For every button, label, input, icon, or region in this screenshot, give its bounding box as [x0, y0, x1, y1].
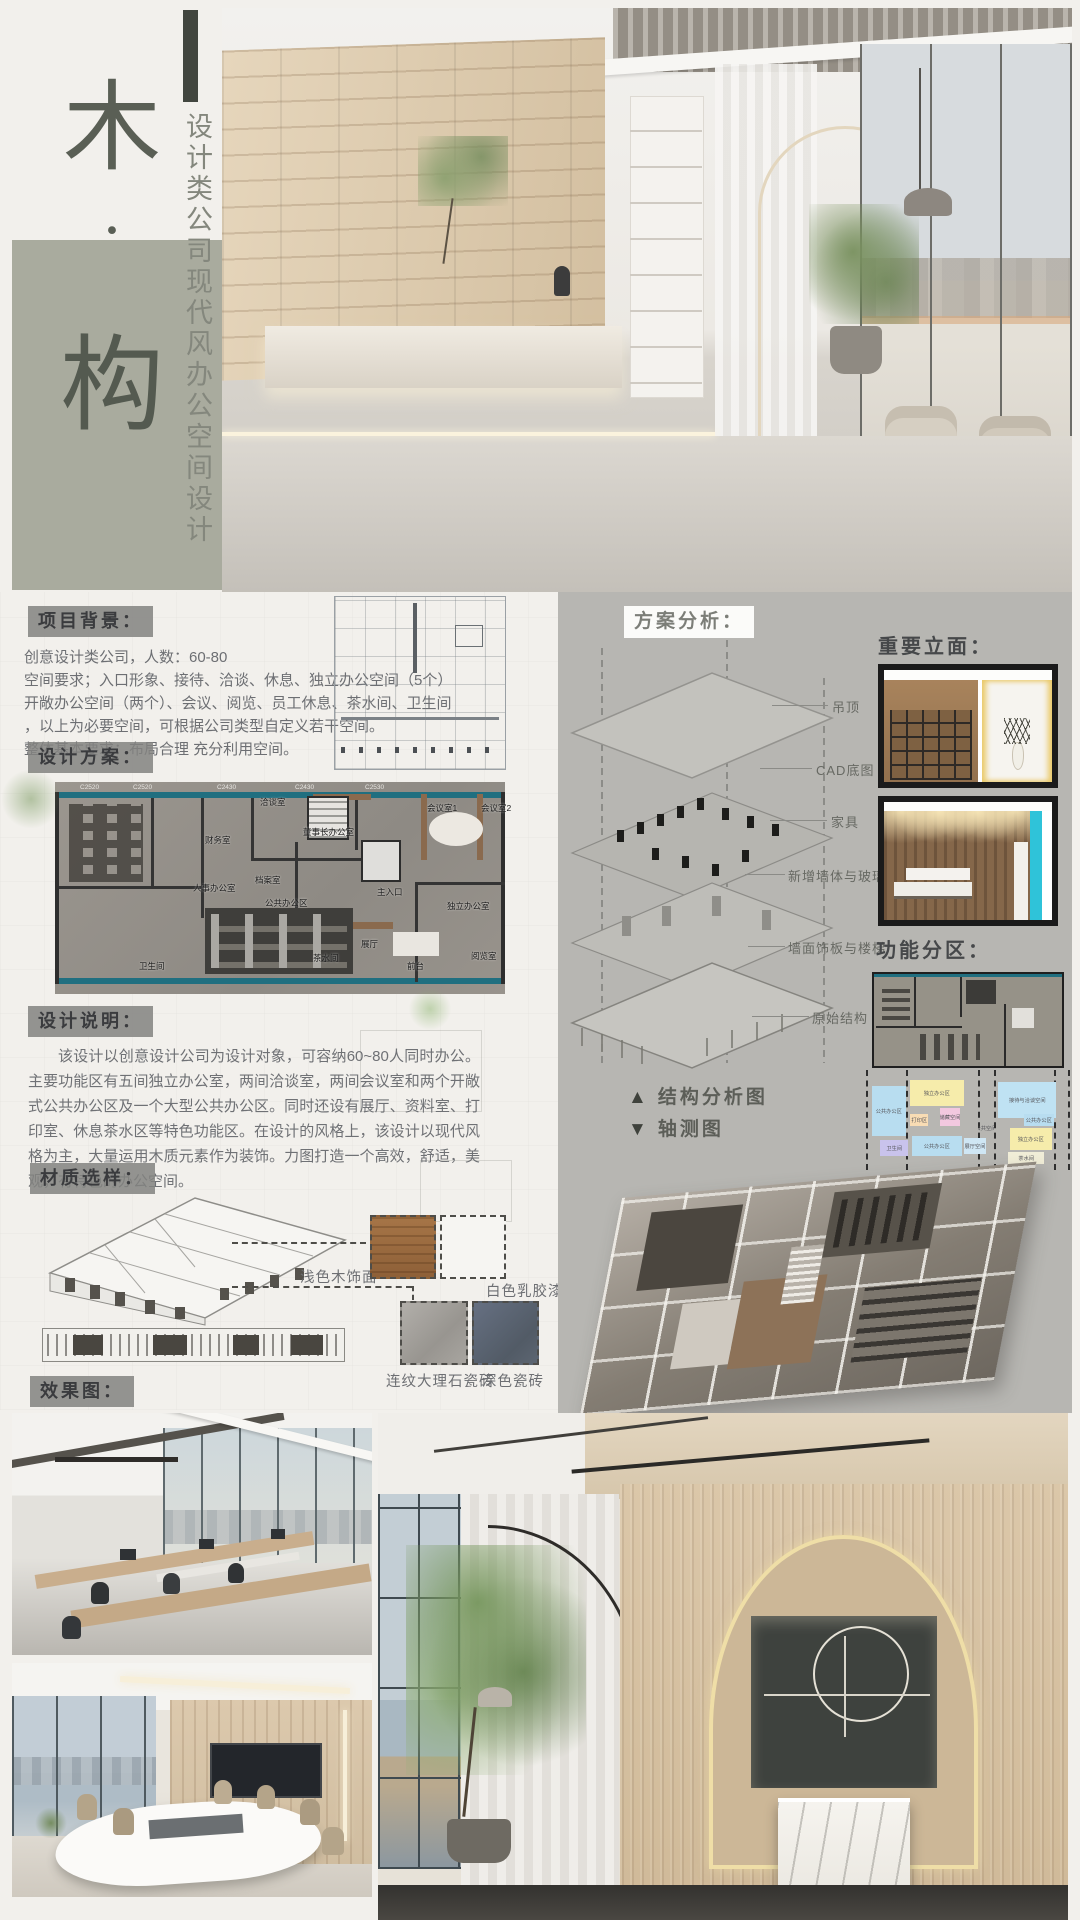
shelf-lines: [630, 96, 702, 396]
presentation-board: 木 · 构 设计类公司现代风办公空间设计 项目背景： 创意: [0, 0, 1080, 1920]
material-swatch-wood: [370, 1215, 436, 1279]
axon-desk-rows: [851, 1278, 981, 1362]
elevation2-downlight-glow: [884, 811, 1030, 871]
legend-structure-analysis: ▲结构分析图: [628, 1082, 768, 1109]
elevations-heading: 重要立面：: [878, 630, 993, 659]
cad-wall: [341, 717, 499, 720]
material-label-wood: 浅色木饰面: [300, 1266, 378, 1287]
leader-line: [772, 705, 828, 706]
design-notes-heading: 设计说明：: [28, 1006, 153, 1037]
elevation2-ceiling-strip: [884, 802, 1052, 811]
elevation1-vase: [1012, 742, 1024, 770]
meeting-chair: [322, 1827, 344, 1855]
project-background-heading: 项目背景：: [28, 606, 153, 637]
mini-plan-wall: [914, 977, 916, 1027]
plan-conference-table: [429, 812, 483, 846]
meeting-chair: [77, 1794, 97, 1820]
room-label: 财务室: [205, 834, 231, 846]
office-linear-light: [55, 1457, 177, 1462]
mini-plan-desks: [882, 984, 910, 1020]
renders-heading: 效果图：: [30, 1376, 134, 1407]
axon-layer-label: CAD底图: [816, 760, 874, 779]
plan-dim-label: C2430: [217, 784, 236, 791]
room-label: 董事长办公室: [303, 826, 354, 838]
mini-plan-wall: [1004, 1004, 1006, 1066]
mini-plan-wall: [876, 1026, 962, 1028]
office-monitor: [199, 1539, 214, 1549]
room-label: 独立办公室: [447, 900, 490, 912]
project-background-line: 创意设计类公司，人数：60-80: [24, 646, 227, 669]
mini-plan-teal-wall: [874, 974, 1062, 977]
zone-block: 卫生间: [880, 1140, 908, 1156]
plan-wall: [251, 798, 254, 858]
room-label: 人事办公室: [193, 882, 236, 894]
plan-desk-cluster: [69, 804, 143, 882]
watercolor-plant-blob: [408, 988, 452, 1030]
pendant-dome: [904, 188, 952, 216]
elevation-strip-block: [233, 1335, 259, 1355]
leader-line: [752, 1016, 809, 1017]
elevation-image-reception-wall: [878, 796, 1058, 926]
mini-plan-dark-room: [966, 980, 996, 1004]
plan-dim-label: C2430: [295, 784, 314, 791]
zoning-diagram: 公共办公区 独立办公区 储藏空间 打印区 卫生间 公共办公区 展厅空间 公共空间…: [860, 1070, 1072, 1170]
sculpture-figure: [554, 266, 570, 296]
office-monitor: [120, 1549, 136, 1560]
exploded-axon-diagram: [562, 638, 862, 1070]
render-meeting-room: [12, 1663, 372, 1897]
room-label: 茶水间: [313, 952, 339, 964]
watercolor-plant-blob: [0, 770, 62, 828]
plan-dim-label: C2530: [365, 784, 384, 791]
cad-key-plan: [334, 596, 506, 770]
legend-structure-label: 结构分析图: [658, 1087, 768, 1108]
plan-wall: [151, 798, 154, 888]
office-monitor: [271, 1529, 285, 1539]
cad-columns-row: [341, 747, 499, 753]
triangle-down-icon: ▼: [628, 1119, 650, 1140]
title-char-1: 木: [52, 48, 172, 190]
leader-line: [760, 768, 812, 769]
floor-glow-line: [222, 432, 715, 436]
elevation-strip-block: [291, 1335, 323, 1355]
elevation1-shelf-grid: [890, 710, 972, 780]
zoning-dashed-line: [866, 1070, 868, 1170]
elevation-strip-drawing: [42, 1328, 345, 1362]
art-circle-sculpture: [813, 1626, 909, 1722]
render-open-office: [12, 1413, 372, 1655]
room-label: 会议室2: [481, 802, 511, 814]
marble-floor: [222, 436, 1072, 592]
zone-block: 展厅空间: [964, 1138, 986, 1154]
material-connector-line: [232, 1242, 366, 1244]
title-char-2: 构: [52, 300, 172, 451]
elevation2-desk-lower: [894, 882, 972, 896]
meeting-chair: [257, 1785, 275, 1809]
plan-elevator: [361, 840, 401, 882]
material-swatch-white-paint: [440, 1215, 506, 1279]
elevation-image-shelf-wall: [878, 664, 1058, 788]
meeting-wall-light: [343, 1710, 347, 1841]
room-label: 前台: [407, 960, 424, 972]
legend-axonometric: ▼轴测图: [628, 1114, 724, 1141]
zone-block: 独立办公区: [910, 1080, 964, 1106]
elevation1-ceiling-strip: [884, 670, 1052, 680]
lounge-tree-pot: [447, 1819, 511, 1863]
office-chair: [228, 1563, 244, 1583]
zone-corridor-label: 公共空间: [978, 1118, 994, 1138]
triangle-up-icon: ▲: [628, 1087, 650, 1108]
indoor-tree: [809, 204, 919, 324]
mini-plan-desks: [920, 1034, 980, 1060]
elevation2-cyan-strip: [1030, 811, 1042, 920]
office-chair: [62, 1616, 81, 1639]
axon-dark-room: [636, 1204, 742, 1291]
room-label: 阅览室: [471, 950, 497, 962]
office-chair: [163, 1573, 180, 1594]
axon-layer-label: 家具: [831, 812, 859, 831]
material-swatch-dark-tile: [472, 1301, 539, 1365]
leader-line: [770, 820, 827, 821]
elevation2-white-column: [1014, 842, 1028, 920]
room-label: 档案室: [255, 874, 281, 886]
zoning-heading: 功能分区：: [876, 934, 991, 963]
counter-tree-foliage: [418, 136, 508, 206]
plan-dim-label: C2520: [133, 784, 152, 791]
zone-block: 独立办公区: [1010, 1128, 1052, 1150]
zoning-dashed-line: [1068, 1070, 1070, 1170]
plan-teal-wall-bottom: [55, 978, 505, 984]
axon-layer-label: 墙面饰板与楼梯: [788, 938, 886, 957]
floor-plan: C2520 C2520 C2430 C2430 C2530: [55, 782, 505, 994]
plan-wall: [59, 886, 204, 889]
room-label: 主入口: [377, 886, 403, 898]
pendant-cord: [919, 68, 921, 190]
art-vertical-line: [844, 1636, 846, 1737]
analysis-heading: 方案分析：: [624, 606, 754, 638]
hero-render-reception: [222, 8, 1072, 592]
plan-wall: [201, 798, 204, 918]
elevation-strip-block: [73, 1335, 103, 1355]
title-bar-mark: [183, 10, 198, 102]
design-plan-heading: 设计方案：: [28, 742, 153, 773]
meeting-plant: [34, 1808, 68, 1838]
zoning-mini-plan: [872, 972, 1064, 1068]
floor-lamp-dome: [478, 1687, 512, 1707]
axonometric-render: [580, 1162, 1037, 1417]
material-swatch-marble: [400, 1301, 468, 1365]
meeting-chair: [300, 1799, 320, 1825]
room-label: 洽谈室: [260, 796, 286, 808]
reception-counter: [265, 326, 622, 388]
project-background-line: ，以上为必要空间，可根据公司类型自定义若干空间。: [24, 715, 384, 738]
room-label: 公共办公区: [265, 897, 308, 909]
render-lounge-reception: [378, 1413, 1068, 1920]
axon-layer-label: 新增墙体与玻璃: [788, 866, 886, 885]
tree-pot: [830, 326, 882, 374]
elevation2-desk-upper: [906, 868, 970, 880]
plan-dim-label: C2520: [80, 784, 99, 791]
plan-wall: [418, 882, 505, 885]
cad-wall: [413, 603, 417, 673]
zone-block: 公共办公区: [1024, 1114, 1054, 1126]
axon-layer-label: 吊顶: [832, 697, 860, 716]
room-label: 会议室1: [427, 802, 457, 814]
plan-reception-desk: [393, 932, 439, 956]
mini-plan-wall: [960, 977, 962, 1017]
room-label: 卫生间: [139, 960, 165, 972]
elevation-strip-block: [153, 1335, 187, 1355]
material-label-marble: 连纹大理石瓷砖: [386, 1370, 495, 1391]
vertical-subtitle: 设计类公司现代风办公空间设计: [178, 112, 217, 572]
room-label: 展厅: [361, 938, 378, 950]
office-chair: [91, 1582, 109, 1604]
plan-wall: [501, 792, 505, 984]
zone-block: 打印区: [910, 1114, 928, 1126]
axon-desk-rows: [832, 1192, 933, 1248]
material-label-dark-tile: 深色瓷砖: [482, 1370, 544, 1391]
zone-block: 公共办公区: [912, 1136, 962, 1156]
zone-block: 公共办公区: [872, 1086, 906, 1136]
meeting-chair: [214, 1780, 232, 1804]
elevation1-plant-stems: [1004, 718, 1030, 744]
title-char-dot: ·: [52, 196, 172, 266]
plan-wood-wall: [351, 922, 393, 929]
art-cross-line: [764, 1694, 930, 1696]
dark-floor-band: [378, 1885, 1068, 1920]
zoning-dashed-line: [994, 1070, 996, 1170]
meeting-cove-light: [120, 1676, 350, 1694]
plan-wall: [251, 858, 361, 861]
plan-wall: [355, 798, 358, 850]
material-connector-line: [412, 1286, 414, 1300]
meeting-chair: [113, 1808, 134, 1835]
mini-plan-white-room: [1012, 1008, 1034, 1028]
material-label-white-paint: 白色乳胶漆: [486, 1280, 564, 1301]
zone-block: 储藏空间: [940, 1108, 960, 1126]
axon-layer-label: 原始结构: [812, 1008, 868, 1027]
leader-line: [748, 946, 785, 947]
leader-line: [745, 874, 785, 875]
legend-axon-label: 轴测图: [658, 1119, 724, 1140]
cad-block: [455, 625, 483, 647]
zone-block: 接待与洽谈空间: [998, 1082, 1056, 1118]
white-model-axon: [45, 1178, 350, 1326]
